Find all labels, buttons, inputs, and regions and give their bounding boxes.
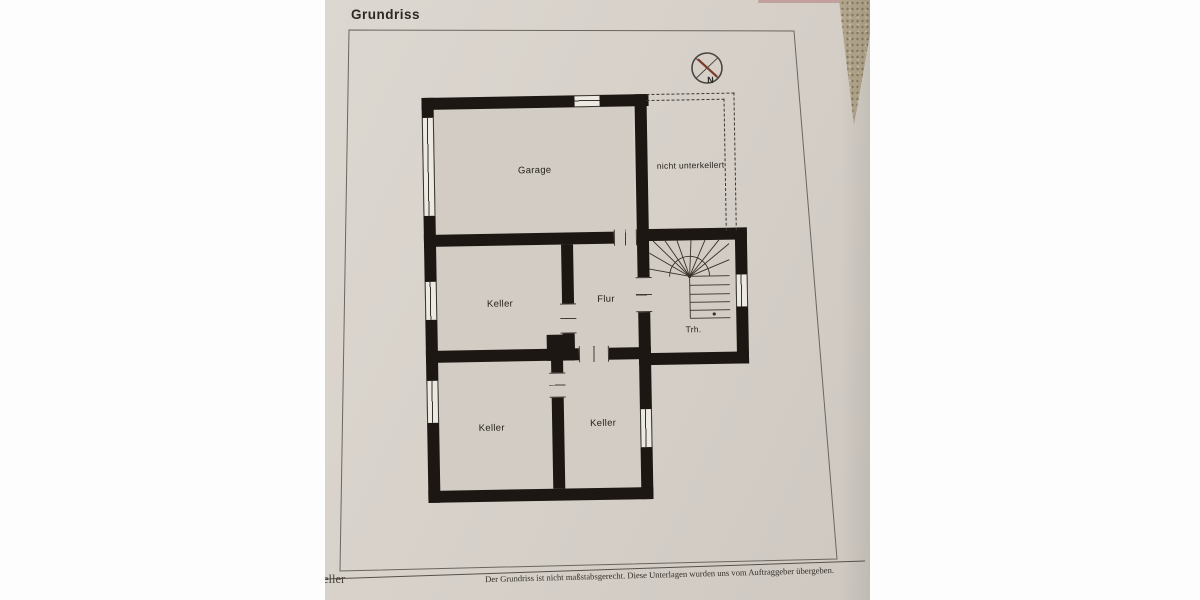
document-photo: Grundriss: [325, 0, 870, 600]
label-keller-bottom-left: Keller: [435, 422, 548, 435]
window-keller-middle-left: [425, 282, 438, 320]
window-garage-top: [574, 95, 599, 107]
label-flur: Flur: [574, 293, 638, 305]
compass-north-label: N: [707, 75, 714, 85]
window-stairwell-right: [736, 274, 749, 306]
door-flur-to-garage: [614, 229, 637, 245]
screenshot-canvas: Grundriss: [0, 0, 1200, 600]
floor-plan: N Garage nicht unterkellert Keller Flur …: [325, 0, 870, 600]
wall-outer-bottom: [428, 487, 653, 503]
corner-text-fragment: eller: [325, 572, 345, 587]
window-keller-bottom-left: [426, 381, 439, 423]
staircase: [649, 240, 737, 353]
door-flur-to-keller-br: [579, 346, 609, 363]
wall-stairwell-bottom: [639, 351, 749, 365]
label-nicht-unterkellert: nicht unterkellert: [643, 159, 739, 171]
label-keller-bottom-right: Keller: [564, 417, 642, 429]
label-keller-middle: Keller: [437, 298, 563, 311]
label-treppenhaus: Trh.: [650, 324, 736, 335]
window-garage-left: [422, 118, 436, 216]
door-keller-bl-to-br: [549, 373, 565, 398]
